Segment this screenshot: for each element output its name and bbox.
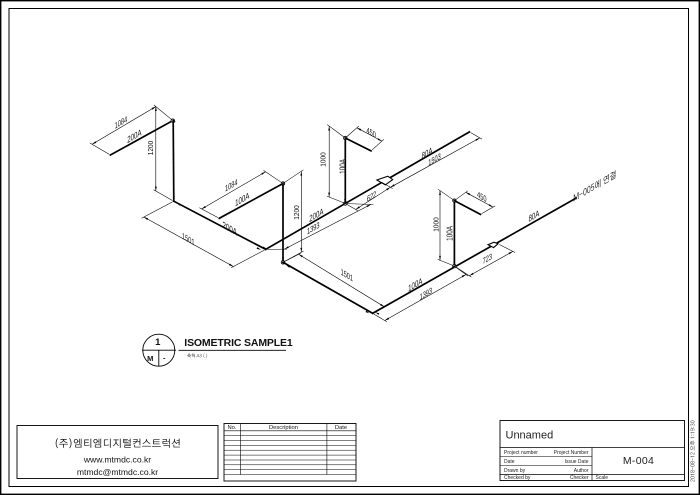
svg-text:Scale: Scale [596,475,609,481]
svg-text:1393: 1393 [420,285,433,302]
svg-text:-: - [163,353,166,362]
svg-text:M: M [147,354,153,363]
svg-text:1501: 1501 [182,231,195,248]
svg-text:1200: 1200 [146,141,155,155]
svg-text:100A: 100A [446,225,455,241]
svg-text:Drawn by: Drawn by [504,468,526,474]
svg-text:Project Number: Project Number [554,450,589,456]
svg-text:100A: 100A [338,158,347,174]
svg-text:Date: Date [335,425,347,431]
svg-text:Issue Date: Issue Date [565,459,589,465]
svg-text:ISOMETRIC SAMPLE1: ISOMETRIC SAMPLE1 [184,337,293,349]
svg-text:1000: 1000 [432,217,441,231]
svg-text:Date: Date [504,459,515,465]
svg-text:No.: No. [227,425,236,431]
svg-text:723: 723 [483,251,493,266]
svg-text:Checked by: Checked by [504,475,531,481]
svg-text:1084: 1084 [115,114,128,131]
svg-text:Unnamed: Unnamed [506,430,554,442]
svg-text:450: 450 [477,189,487,204]
svg-text:200A: 200A [223,219,237,238]
svg-text:mtmdc@mtmdc.co.kr: mtmdc@mtmdc.co.kr [77,467,158,477]
svg-text:www.mtmdc.co.kr: www.mtmdc.co.kr [83,454,151,464]
svg-text:Project number: Project number [504,450,538,456]
svg-text:1000: 1000 [319,152,328,166]
svg-text:Author: Author [574,468,589,474]
svg-text:Description: Description [269,425,298,431]
svg-text:1: 1 [155,337,161,348]
svg-text:Checker: Checker [570,475,589,481]
svg-text:450: 450 [367,125,377,140]
svg-text:M-004: M-004 [623,455,654,467]
svg-text:1200: 1200 [292,205,301,219]
